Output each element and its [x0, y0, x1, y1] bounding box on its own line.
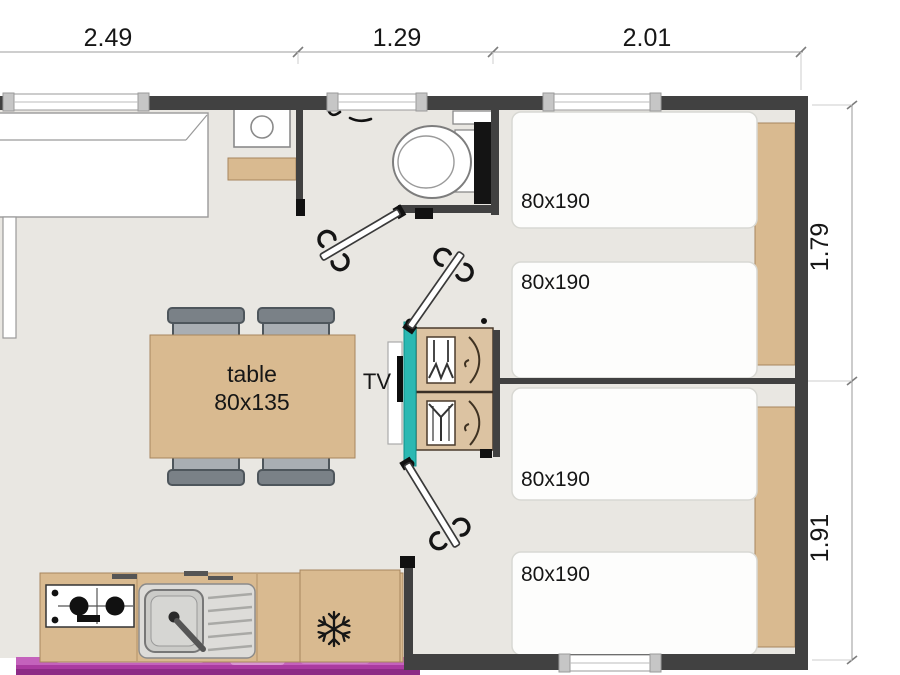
hinge-block [400, 556, 415, 568]
wardrobe [416, 318, 493, 458]
wall-bathroom-bottom [398, 205, 498, 213]
window [327, 93, 427, 111]
wall-bathroom-right [491, 110, 499, 215]
drawer-handle [208, 576, 233, 580]
floor-plan: table 80x135 80x190 80x190 [0, 0, 900, 675]
bed-size-label: 80x190 [521, 190, 590, 213]
tv-screen [397, 356, 403, 402]
hanging-clothes-icon [427, 401, 455, 445]
door-stop [481, 318, 487, 324]
knob-icon [52, 590, 59, 597]
hinge-block [480, 449, 492, 458]
bed-size-label: 80x190 [521, 271, 590, 294]
drawer-handle [184, 571, 208, 576]
knob-icon [52, 617, 59, 624]
dimension-label: 1.91 [806, 514, 834, 563]
dimension-top: 2.49 1.29 2.01 [0, 24, 806, 90]
table-label: table [227, 361, 277, 387]
tv-label: TV [363, 369, 391, 394]
sink [139, 584, 255, 658]
bed-size-label: 80x190 [521, 563, 590, 586]
drawer-handle [112, 574, 137, 579]
wall-right [795, 96, 808, 670]
window [543, 93, 661, 111]
wall-hallway [493, 330, 500, 457]
headboard [755, 407, 795, 647]
dimension-label: 1.29 [373, 24, 422, 52]
window [3, 93, 149, 111]
table-size-label: 80x135 [214, 389, 289, 415]
wall-bathroom-left [296, 110, 303, 207]
door-stop [415, 208, 433, 219]
burner-icon [70, 597, 89, 616]
grate-bar [77, 615, 100, 622]
dimension-label: 2.01 [623, 24, 672, 52]
dimension-label: 1.79 [806, 223, 834, 272]
hanging-clothes-icon [427, 337, 455, 383]
wall-bedroom-divider [493, 378, 795, 384]
freezer [300, 570, 400, 662]
window [559, 654, 661, 672]
wall-kitchen-stub [404, 558, 413, 670]
headboard [755, 123, 795, 365]
teal-partition [404, 319, 416, 469]
bed-size-label: 80x190 [521, 468, 590, 491]
dimension-right: 1.79 1.91 [806, 101, 857, 664]
burner-icon [106, 597, 125, 616]
stove [46, 585, 134, 627]
dimension-label: 2.49 [84, 24, 133, 52]
door-jamb [296, 199, 305, 216]
washbasin [228, 107, 296, 180]
dining-set: table 80x135 [150, 308, 355, 485]
deck-shadow [16, 669, 420, 675]
